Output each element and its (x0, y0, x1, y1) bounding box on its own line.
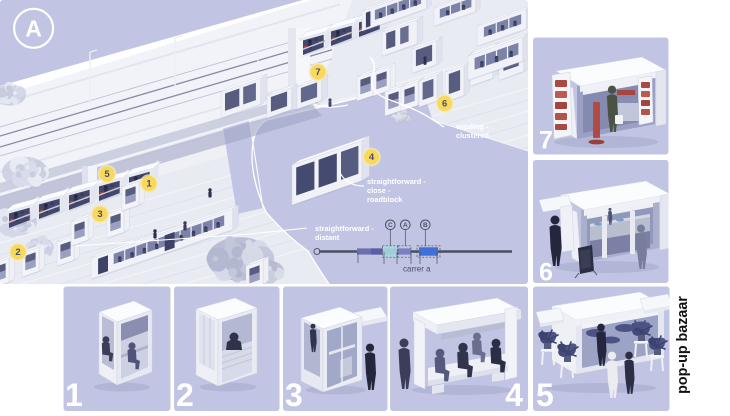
svg-text:3: 3 (285, 377, 303, 411)
svg-text:carrer a: carrer a (403, 265, 431, 274)
svg-text:4: 4 (369, 152, 375, 163)
svg-text:distant: distant (315, 233, 340, 242)
svg-text:roadblock: roadblock (367, 195, 403, 204)
svg-text:4: 4 (505, 377, 523, 411)
svg-text:7: 7 (539, 127, 553, 155)
svg-text:6: 6 (442, 99, 447, 110)
svg-text:2: 2 (15, 247, 20, 258)
svg-text:5: 5 (104, 169, 110, 180)
svg-text:A: A (403, 222, 408, 229)
svg-text:close -: close - (367, 186, 391, 195)
svg-text:A: A (25, 16, 42, 42)
svg-text:B: B (423, 222, 428, 229)
svg-text:straightforward -: straightforward - (315, 224, 374, 233)
svg-text:straightforward -: straightforward - (367, 177, 426, 186)
svg-text:winding -: winding - (455, 122, 489, 131)
svg-text:C: C (388, 222, 393, 229)
svg-text:1: 1 (146, 179, 152, 190)
svg-text:7: 7 (315, 67, 320, 78)
svg-text:clustered: clustered (456, 131, 489, 140)
svg-text:2: 2 (176, 377, 194, 411)
svg-text:6: 6 (539, 259, 553, 287)
svg-text:pop-up bazaar: pop-up bazaar (675, 296, 691, 394)
svg-text:1: 1 (65, 377, 83, 411)
svg-text:5: 5 (536, 377, 554, 411)
svg-text:3: 3 (97, 209, 102, 220)
